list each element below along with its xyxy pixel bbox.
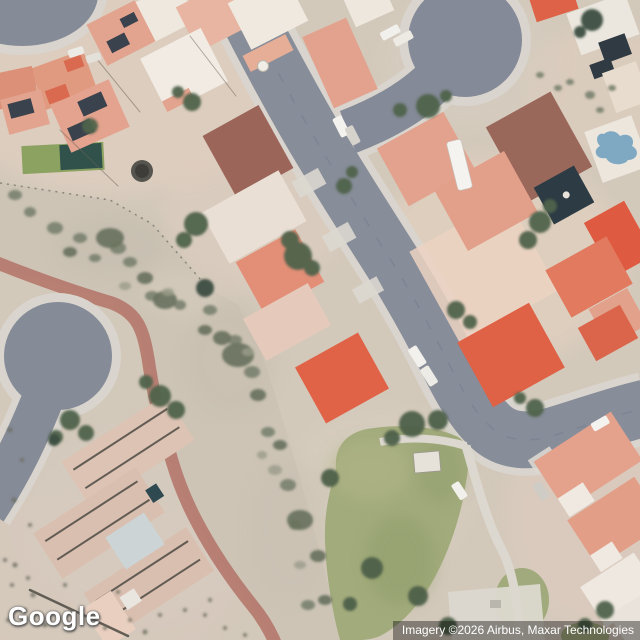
backyard-lawn-pool <box>21 142 104 174</box>
satellite-map-viewport[interactable]: Google Imagery ©2026 Airbus, Maxar Techn… <box>0 0 640 640</box>
courtyard-spa <box>258 61 269 72</box>
park-ramada <box>413 451 441 473</box>
google-logo[interactable]: Google <box>8 601 101 632</box>
attribution-bar: Imagery ©2026 Airbus, Maxar Technologies <box>393 621 640 640</box>
picnic-table <box>490 600 501 608</box>
attribution-text: Imagery ©2026 Airbus, Maxar Technologies <box>402 623 634 637</box>
cul-de-sac-west <box>4 302 112 410</box>
satellite-imagery[interactable] <box>0 0 640 640</box>
